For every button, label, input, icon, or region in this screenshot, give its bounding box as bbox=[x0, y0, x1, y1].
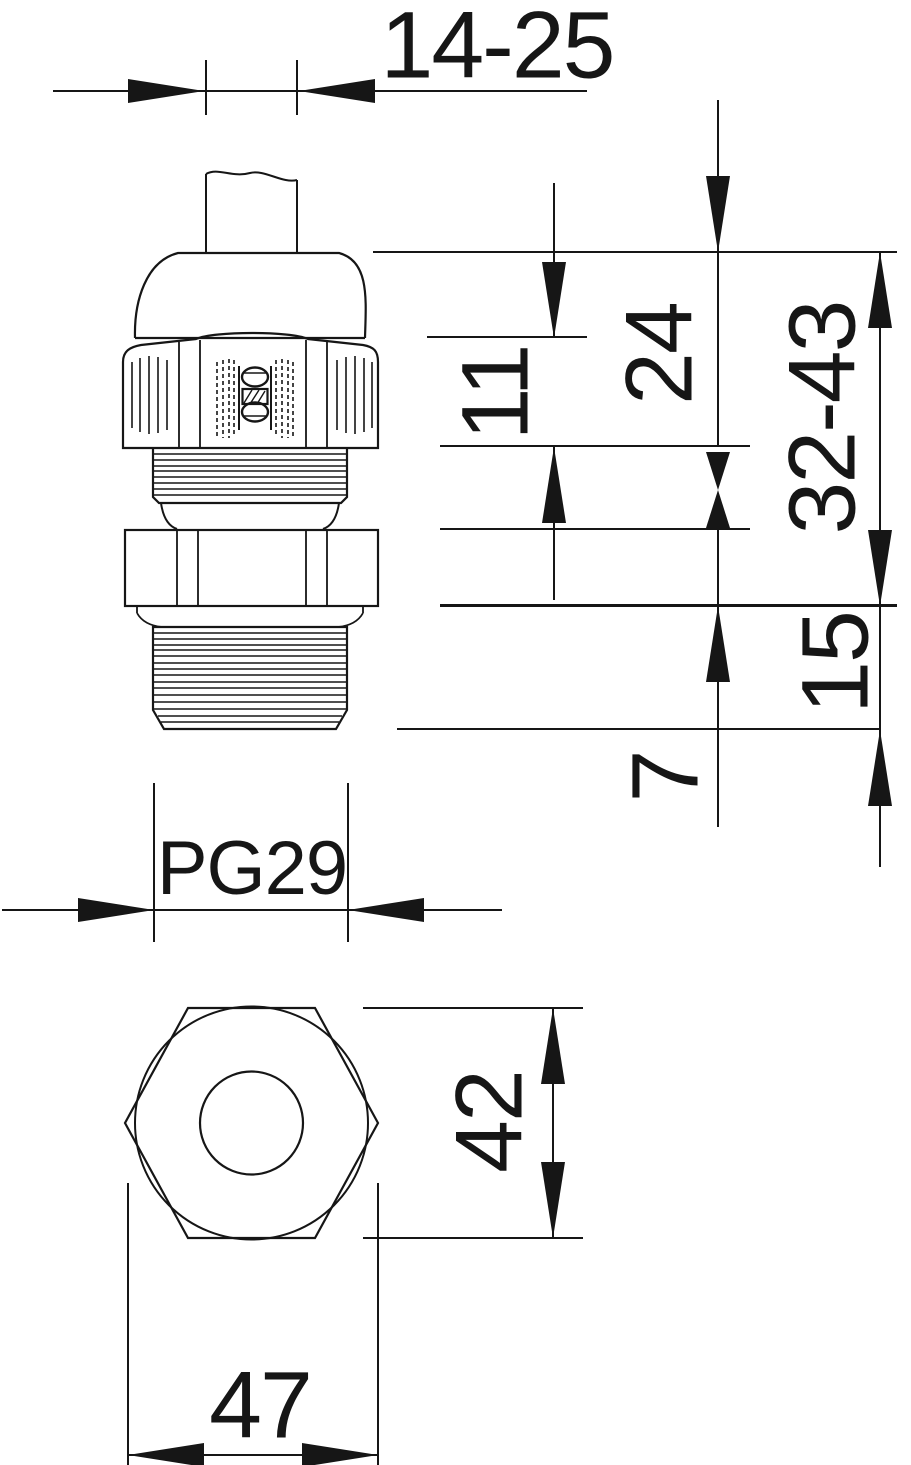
arrowhead-up bbox=[868, 730, 892, 806]
upper-hex-face-edges bbox=[179, 340, 327, 448]
cap-dome bbox=[135, 253, 366, 338]
middle-hex-face-edges bbox=[177, 530, 327, 606]
extension-tick-cable-left bbox=[205, 60, 207, 115]
knurl-lines-right bbox=[337, 356, 372, 434]
ref-line-midnut-bottom bbox=[440, 604, 897, 607]
bottom-view bbox=[75, 960, 435, 1290]
dim-label-clamping-range: 14-25 bbox=[381, 0, 614, 94]
middle-hex-nut bbox=[125, 530, 378, 606]
dim-label-32-43: 32-43 bbox=[776, 302, 871, 535]
thread-outline bbox=[153, 627, 347, 729]
arrowhead-down-hourglass bbox=[706, 452, 730, 490]
arrowhead-up-hourglass bbox=[706, 490, 730, 528]
hexagon-outline bbox=[125, 1008, 378, 1238]
dim-label-11: 11 bbox=[449, 346, 544, 441]
arrowhead-up bbox=[541, 1008, 565, 1084]
ref-line-midnut-top bbox=[440, 528, 750, 530]
arrowhead-left bbox=[348, 898, 424, 922]
dim-label-pg29: PG29 bbox=[157, 831, 347, 907]
front-view bbox=[100, 160, 400, 740]
upper-hex-nut bbox=[123, 333, 378, 448]
cable-stub bbox=[206, 172, 297, 252]
dim-line-24 bbox=[717, 100, 719, 446]
extension-line-47-left bbox=[127, 1183, 129, 1465]
arrowhead-right bbox=[78, 898, 154, 922]
arrowhead-down bbox=[541, 1162, 565, 1238]
arrowhead-left bbox=[299, 79, 375, 103]
cable-hole-circle bbox=[200, 1072, 303, 1175]
dim-label-15: 15 bbox=[789, 612, 884, 714]
arrowhead-right bbox=[302, 1443, 378, 1465]
neck-lower bbox=[137, 606, 363, 627]
arrowhead-up bbox=[542, 447, 566, 523]
thread-lines bbox=[154, 633, 346, 722]
technical-drawing-canvas: 14-25 11 24 7 32-43 15 PG29 42 47 bbox=[0, 0, 911, 1465]
arrowhead-left bbox=[128, 1443, 204, 1465]
knurl-stipple bbox=[217, 359, 293, 438]
dim-label-7: 7 bbox=[619, 752, 714, 803]
arrowhead-up bbox=[706, 606, 730, 682]
extension-line-47-right bbox=[377, 1183, 379, 1465]
dim-label-47: 47 bbox=[209, 1359, 311, 1454]
extension-tick-cable-right bbox=[296, 60, 298, 115]
arrowhead-down bbox=[706, 176, 730, 252]
knurl-lines-left bbox=[132, 356, 167, 434]
seal-ring-ribs bbox=[154, 454, 346, 495]
ref-line-hex-bottom bbox=[440, 445, 750, 447]
arrowhead-right bbox=[128, 79, 204, 103]
dim-label-42: 42 bbox=[443, 1071, 538, 1173]
ref-line-cap-top bbox=[373, 251, 897, 253]
arrowhead-down bbox=[542, 262, 566, 338]
arrowhead-down bbox=[868, 530, 892, 606]
dim-label-24: 24 bbox=[613, 303, 708, 405]
obo-logo bbox=[242, 368, 268, 422]
ref-line-thread-bottom bbox=[397, 728, 881, 730]
neck-upper bbox=[161, 503, 339, 529]
